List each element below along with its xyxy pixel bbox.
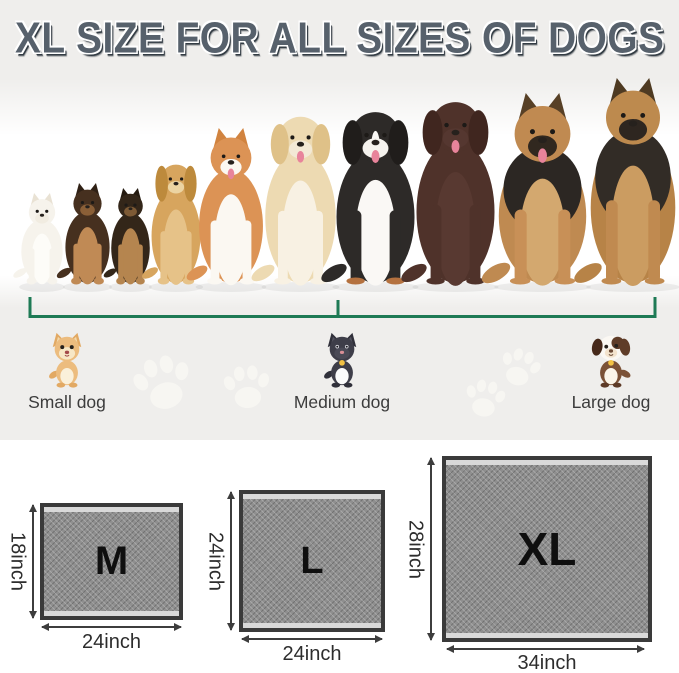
size-group-label: Large dog [572, 392, 651, 413]
page-title: XL SIZE FOR ALL SIZES OF DOGS [15, 14, 664, 64]
size-group-label: Medium dog [294, 392, 390, 413]
product-size-infographic: XL SIZE FOR ALL SIZES OF DOGS Small dog [0, 0, 679, 673]
golden-retriever-illustration [249, 117, 340, 292]
size-group-label: Small dog [28, 392, 106, 413]
size-group-large: Large dog [556, 331, 666, 413]
german-shepherd-large-illustration [571, 78, 679, 292]
pad-l-height-arrow [230, 492, 232, 630]
pad-edge-strip [446, 633, 648, 638]
german-shepherd-illustration [479, 93, 591, 292]
size-group-small: Small dog [12, 331, 122, 413]
chocolate-labrador-illustration [398, 102, 498, 292]
dog-lineup-photo [0, 70, 679, 295]
pad-m-height-label: 18inch [4, 505, 30, 618]
pad-m-width-arrow [42, 626, 181, 628]
pad-l-width-arrow [242, 638, 382, 640]
pad-m-width-label: 24inch [40, 631, 183, 654]
title-row: XL SIZE FOR ALL SIZES OF DOGS [0, 16, 679, 61]
pad-xl-height-label: 28inch [402, 458, 428, 640]
pad-xl-width-arrow [447, 648, 644, 650]
medium-dog-icon [319, 331, 365, 388]
pad-l-width-label: 24inch [239, 643, 385, 666]
paw-print-icon [123, 345, 203, 422]
pad-diagram-xl: XL [442, 456, 652, 642]
pad-size-letter: M [44, 512, 179, 611]
pad-xl-width-label: 34inch [442, 652, 652, 673]
pad-size-letter: XL [446, 465, 648, 633]
shepherd-puppy-illustration [55, 183, 112, 292]
size-group-medium: Medium dog [287, 331, 397, 413]
pad-xl-height-arrow [430, 458, 432, 640]
pad-edge-strip [44, 611, 179, 616]
size-range-bracket [0, 294, 679, 326]
pad-size-letter: L [243, 499, 381, 623]
pad-diagram-m: M [40, 503, 183, 620]
paw-print-icon [218, 360, 276, 415]
pad-l-height-label: 24inch [202, 492, 228, 630]
large-dog-icon [588, 331, 634, 388]
pad-diagram-l: L [239, 490, 385, 632]
small-dog-icon [44, 331, 90, 388]
pad-m-height-arrow [32, 505, 34, 618]
corgi-illustration [184, 128, 266, 292]
white-puppy-illustration [12, 193, 65, 292]
pad-edge-strip [243, 623, 381, 628]
